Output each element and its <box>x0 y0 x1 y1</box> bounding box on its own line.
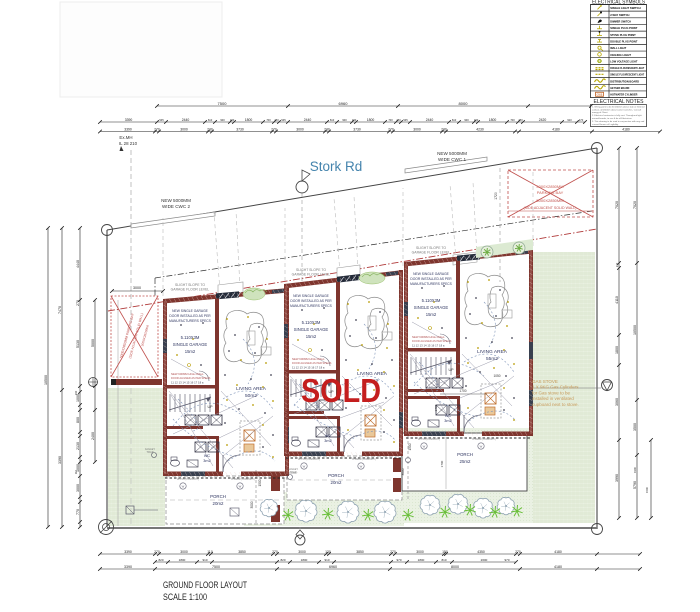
svg-text:3000: 3000 <box>250 501 254 508</box>
svg-text:610: 610 <box>452 118 457 122</box>
svg-text:MANUFACTURERS SPECS: MANUFACTURERS SPECS <box>169 319 212 323</box>
svg-text:installed in ventilated: installed in ventilated <box>532 396 574 401</box>
svg-text:W-TD5 (COMPANY): W-TD5 (COMPANY) <box>418 438 440 441</box>
svg-text:DOUBLE FLOURESCENT LIGHT: DOUBLE FLOURESCENT LIGHT <box>610 66 644 70</box>
svg-text:2420: 2420 <box>539 118 547 122</box>
svg-text:3m2: 3m2 <box>203 459 210 463</box>
svg-text:3850: 3850 <box>238 550 246 554</box>
svg-text:230: 230 <box>352 118 357 122</box>
svg-text:11 12 13 14 15 16 17 18 a: 11 12 13 14 15 16 17 18 a <box>412 344 445 348</box>
svg-text:NEW SINGLE GARAGE: NEW SINGLE GARAGE <box>413 272 450 276</box>
svg-text:970: 970 <box>504 558 509 562</box>
svg-text:270: 270 <box>388 127 394 131</box>
svg-text:4180: 4180 <box>554 550 562 554</box>
svg-text:970: 970 <box>396 558 401 562</box>
svg-text:W: W <box>480 444 483 448</box>
svg-text:NEW SINGLE GARAGE: NEW SINGLE GARAGE <box>172 309 209 313</box>
svg-text:CEILING LIGHT: CEILING LIGHT <box>610 53 631 57</box>
svg-text:545: 545 <box>403 118 408 122</box>
svg-text:3m2: 3m2 <box>444 419 451 423</box>
svg-text:3m2: 3m2 <box>324 439 331 443</box>
svg-text:SINGLE GARAGE: SINGLE GARAGE <box>294 327 329 332</box>
svg-text:7020: 7020 <box>615 201 619 209</box>
svg-text:3390: 3390 <box>124 565 132 569</box>
svg-text:2440: 2440 <box>304 118 312 122</box>
svg-text:D-SMAD (COMPANY): D-SMAD (COMPANY) <box>231 478 255 481</box>
svg-text:PORCH: PORCH <box>328 473 344 478</box>
svg-text:5000: 5000 <box>91 339 95 347</box>
svg-text:DOUBLE PLUG POINT: DOUBLE PLUG POINT <box>610 39 637 43</box>
svg-text:5.110X3M: 5.110X3M <box>422 298 441 303</box>
svg-text:3. This drawing to be read in: 3. This drawing to be read in conjunctio… <box>592 120 645 123</box>
svg-text:15m2: 15m2 <box>426 312 437 317</box>
svg-text:545: 545 <box>159 118 164 122</box>
svg-text:900: 900 <box>342 118 347 122</box>
svg-text:NEW 600MM HIGH WALL: NEW 600MM HIGH WALL <box>292 357 325 361</box>
svg-text:700: 700 <box>388 118 393 122</box>
svg-text:4110: 4110 <box>615 296 619 304</box>
svg-text:450: 450 <box>396 118 401 122</box>
svg-text:1720: 1720 <box>494 192 498 200</box>
svg-text:SINGLE GARAGE: SINGLE GARAGE <box>414 305 449 310</box>
svg-text:270: 270 <box>390 550 396 554</box>
svg-text:for Gas stove to be: for Gas stove to be <box>532 390 571 395</box>
svg-text:GROUND FLOOR LAYOUT: GROUND FLOOR LAYOUT <box>163 580 247 591</box>
svg-text:5.110X3M: 5.110X3M <box>302 320 321 325</box>
svg-text:4180: 4180 <box>622 127 630 131</box>
svg-text:Stork Rd: Stork Rd <box>310 159 363 174</box>
svg-text:D-SMAD (COMPANY): D-SMAD (COMPANY) <box>472 438 496 441</box>
svg-text:3000: 3000 <box>413 127 421 131</box>
svg-text:700: 700 <box>266 118 271 122</box>
svg-text:2440: 2440 <box>426 118 434 122</box>
svg-text:GARAGE FLOOR LEVEL: GARAGE FLOOR LEVEL <box>292 273 331 277</box>
svg-text:IL 28 210: IL 28 210 <box>119 141 138 146</box>
svg-text:TRAP: TRAP <box>147 450 154 454</box>
svg-text:450: 450 <box>274 118 279 122</box>
svg-text:610: 610 <box>208 118 213 122</box>
svg-text:GARAGE FLOOR LEVEL: GARAGE FLOOR LEVEL <box>412 251 451 255</box>
svg-text:770: 770 <box>76 509 80 515</box>
svg-text:GEYSER BOARD: GEYSER BOARD <box>610 86 630 90</box>
svg-text:3500: 3500 <box>633 423 637 431</box>
svg-text:270: 270 <box>76 300 80 306</box>
svg-text:4180: 4180 <box>552 127 560 131</box>
svg-text:(SIDE ADJACENT SOLID WALL): (SIDE ADJACENT SOLID WALL) <box>524 206 577 210</box>
svg-text:3000: 3000 <box>416 550 424 554</box>
svg-text:3000: 3000 <box>298 550 306 554</box>
svg-text:110: 110 <box>207 550 213 554</box>
svg-text:3000: 3000 <box>180 127 188 131</box>
svg-text:GAS STOVE: GAS STOVE <box>532 379 558 384</box>
svg-text:2400: 2400 <box>91 432 95 440</box>
svg-text:3850: 3850 <box>356 550 364 554</box>
svg-text:4180: 4180 <box>554 565 562 569</box>
svg-text:15m2: 15m2 <box>306 334 317 339</box>
svg-text:2-WAY SWITCH: 2-WAY SWITCH <box>610 13 629 17</box>
svg-text:2. Electrical contractor is fu: 2. Electrical contractor is fully cert. … <box>592 114 642 117</box>
svg-text:20m2: 20m2 <box>213 501 225 506</box>
svg-text:25m2: 25m2 <box>460 459 472 464</box>
svg-text:1800: 1800 <box>615 346 619 354</box>
svg-text:current Bureau of Legibility.: current Bureau of Legibility. <box>592 123 619 126</box>
svg-text:3390: 3390 <box>58 456 62 464</box>
svg-text:2130: 2130 <box>76 442 80 450</box>
svg-text:130: 130 <box>325 550 331 554</box>
svg-text:1 X 9KG Gas Cylinders: 1 X 9KG Gas Cylinders <box>532 385 579 390</box>
svg-text:NEW SINGLE GARAGE: NEW SINGLE GARAGE <box>293 294 330 298</box>
svg-text:TRAP: TRAP <box>290 470 297 474</box>
svg-text:1800: 1800 <box>179 558 186 562</box>
svg-text:470: 470 <box>579 118 584 122</box>
svg-text:4440: 4440 <box>76 260 80 268</box>
svg-text:6960: 6960 <box>339 101 349 106</box>
svg-text:energy of Client.: energy of Client. <box>592 111 608 114</box>
svg-text:W-TD5 (COMPANY): W-TD5 (COMPANY) <box>177 478 199 481</box>
svg-text:230: 230 <box>441 127 447 131</box>
svg-text:STOVE PLUG POINT: STOVE PLUG POINT <box>610 33 636 37</box>
svg-text:270: 270 <box>271 127 277 131</box>
svg-text:MANUFACTURERS SPECS: MANUFACTURERS SPECS <box>410 282 453 286</box>
svg-text:5790: 5790 <box>633 481 637 489</box>
svg-text:15m2: 15m2 <box>185 349 196 354</box>
svg-text:SCALE 1:100: SCALE 1:100 <box>163 592 207 603</box>
svg-text:1800: 1800 <box>245 118 253 122</box>
svg-text:W: W <box>360 464 363 468</box>
svg-text:SOLD: SOLD <box>301 372 381 409</box>
svg-text:230: 230 <box>230 118 235 122</box>
svg-text:DOOR ALIGNED AS PER SPECS: DOOR ALIGNED AS PER SPECS <box>171 376 211 380</box>
svg-text:270: 270 <box>515 550 521 554</box>
svg-text:W: W <box>423 444 426 448</box>
svg-text:3390: 3390 <box>125 118 133 122</box>
svg-text:1050: 1050 <box>493 374 500 378</box>
svg-text:450: 450 <box>518 118 523 122</box>
svg-text:WC: WC <box>325 434 332 438</box>
svg-text:10500: 10500 <box>44 375 48 385</box>
svg-text:11 12 13 14 15 16 17 18 a: 11 12 13 14 15 16 17 18 a <box>171 381 204 385</box>
svg-text:PORCH: PORCH <box>210 494 226 499</box>
svg-text:W-TD5 (COMPANY): W-TD5 (COMPANY) <box>298 458 320 461</box>
svg-text:270: 270 <box>272 550 278 554</box>
svg-text:SLIGHT SLOPE TO: SLIGHT SLOPE TO <box>416 246 446 250</box>
svg-text:820: 820 <box>280 558 285 562</box>
svg-text:5000X2850MM: 5000X2850MM <box>536 198 563 203</box>
svg-text:PARKING BAY: PARKING BAY <box>537 190 564 195</box>
svg-text:900: 900 <box>220 118 225 122</box>
svg-text:surface, all 450mm about socke: surface, all 450mm about socket switches… <box>592 108 642 111</box>
svg-text:PORCH: PORCH <box>457 452 473 457</box>
svg-text:3990: 3990 <box>615 474 619 482</box>
svg-text:1900: 1900 <box>633 467 637 473</box>
svg-text:270: 270 <box>154 127 160 131</box>
svg-text:4230: 4230 <box>476 127 484 131</box>
svg-text:1500: 1500 <box>258 479 262 486</box>
svg-text:10500: 10500 <box>633 325 637 335</box>
svg-text:DIMMER SWITCH: DIMMER SWITCH <box>610 20 631 24</box>
svg-text:3730: 3730 <box>236 127 244 131</box>
svg-text:3000: 3000 <box>133 286 141 290</box>
svg-text:W: W <box>239 484 242 488</box>
svg-text:NEW 5000MM: NEW 5000MM <box>161 198 191 203</box>
svg-text:cupboard next to stove.: cupboard next to stove. <box>532 402 579 407</box>
svg-text:7020: 7020 <box>633 201 637 209</box>
svg-text:DOOR INSTALLED AS PER: DOOR INSTALLED AS PER <box>169 314 211 318</box>
svg-text:910: 910 <box>567 118 572 122</box>
svg-text:SINGLE FLOURESCENT LIGHT: SINGLE FLOURESCENT LIGHT <box>610 73 644 77</box>
svg-text:545: 545 <box>281 118 286 122</box>
svg-text:D-SMAD (COMPANY): D-SMAD (COMPANY) <box>352 458 376 461</box>
svg-text:2600: 2600 <box>481 558 488 562</box>
svg-text:5.110X3M: 5.110X3M <box>181 335 200 340</box>
svg-text:3000: 3000 <box>401 468 405 475</box>
svg-text:3730: 3730 <box>353 127 361 131</box>
svg-text:55m2: 55m2 <box>486 356 498 362</box>
svg-text:WALL LIGHT: WALL LIGHT <box>610 46 626 50</box>
svg-text:HOTWATER CYLINDER: HOTWATER CYLINDER <box>610 93 638 97</box>
svg-text:SLIGHT SLOPE TO: SLIGHT SLOPE TO <box>296 268 326 272</box>
svg-text:3000: 3000 <box>76 484 80 492</box>
svg-text:3000: 3000 <box>180 550 188 554</box>
svg-text:DOOR INSTALLED AS PER: DOOR INSTALLED AS PER <box>290 299 332 303</box>
svg-text:SINGLE LIGHT SWITCH: SINGLE LIGHT SWITCH <box>610 6 640 10</box>
svg-text:1800: 1800 <box>418 558 425 562</box>
svg-text:910: 910 <box>324 558 329 562</box>
svg-text:Ex.MH: Ex.MH <box>119 135 132 140</box>
svg-text:1800: 1800 <box>301 558 308 562</box>
svg-text:GWB: GWB <box>597 94 603 97</box>
svg-text:1. Wiring point to be 50 450mm: 1. Wiring point to be 50 450mm above sla… <box>592 105 645 108</box>
svg-text:11 12 13 14 15 16 17 18 a: 11 12 13 14 15 16 17 18 a <box>292 366 325 370</box>
svg-text:7500: 7500 <box>212 565 220 569</box>
svg-text:150: 150 <box>442 550 448 554</box>
svg-text:1800: 1800 <box>489 118 497 122</box>
svg-text:4350: 4350 <box>477 550 485 554</box>
svg-text:910: 910 <box>202 558 207 562</box>
svg-text:5000X2850MM: 5000X2850MM <box>536 184 563 189</box>
svg-text:DOOR ALIGNED AS PER SPECS: DOOR ALIGNED AS PER SPECS <box>412 339 452 343</box>
svg-text:3390: 3390 <box>124 550 132 554</box>
svg-text:LIVING AREA: LIVING AREA <box>236 386 267 392</box>
svg-text:DOOR ALIGNED AS PER SPECS: DOOR ALIGNED AS PER SPECS <box>292 361 332 365</box>
svg-text:230: 230 <box>324 127 330 131</box>
svg-text:SLIGHT SLOPE TO: SLIGHT SLOPE TO <box>175 283 205 287</box>
svg-text:WIDE CWC 2: WIDE CWC 2 <box>162 204 191 209</box>
svg-text:7500: 7500 <box>218 101 228 106</box>
svg-text:700: 700 <box>510 118 515 122</box>
svg-text:SINGLE GARAGE: SINGLE GARAGE <box>173 342 208 347</box>
svg-text:WIDE CWC 1: WIDE CWC 1 <box>438 157 467 162</box>
svg-text:230: 230 <box>74 390 78 395</box>
svg-text:NEW 5000MM: NEW 5000MM <box>437 151 467 156</box>
svg-text:8000: 8000 <box>459 101 469 106</box>
svg-text:3000: 3000 <box>296 127 304 131</box>
svg-text:610: 610 <box>330 118 335 122</box>
svg-text:ELECTRICAL NOTES: ELECTRICAL NOTES <box>594 99 645 105</box>
svg-text:NEW 600MM HIGH WALL: NEW 600MM HIGH WALL <box>412 335 445 339</box>
svg-text:820: 820 <box>158 558 163 562</box>
svg-text:1700: 1700 <box>459 389 466 393</box>
svg-text:6960: 6960 <box>329 565 337 569</box>
svg-text:NEW 600MM HIGH WALL: NEW 600MM HIGH WALL <box>171 372 204 376</box>
svg-text:230: 230 <box>207 127 213 131</box>
svg-text:3060: 3060 <box>615 398 619 406</box>
svg-text:W: W <box>303 464 306 468</box>
svg-text:1500: 1500 <box>645 487 649 493</box>
svg-text:SINGLE PLUG POINT: SINGLE PLUG POINT <box>610 26 637 30</box>
svg-text:WC: WC <box>204 454 211 458</box>
svg-text:UP: UP <box>208 405 214 409</box>
svg-text:around boards, to use & be of: around boards, to use & be of Electricia… <box>592 117 633 120</box>
svg-text:LOW VOLTAGE LIGHT: LOW VOLTAGE LIGHT <box>610 59 637 63</box>
svg-text:5130: 5130 <box>76 340 80 348</box>
svg-text:GARAGE FLOOR LEVEL: GARAGE FLOOR LEVEL <box>171 288 210 292</box>
svg-text:1500: 1500 <box>408 443 412 450</box>
svg-text:UP: UP <box>449 368 455 372</box>
svg-text:270: 270 <box>154 550 160 554</box>
svg-text:810: 810 <box>441 558 446 562</box>
svg-text:230: 230 <box>474 118 479 122</box>
svg-text:DOOR INSTALLED AS PER: DOOR INSTALLED AS PER <box>410 277 452 281</box>
svg-text:3390: 3390 <box>124 127 132 131</box>
svg-text:20m2: 20m2 <box>331 480 343 485</box>
svg-text:W: W <box>182 484 185 488</box>
svg-text:DISTRIBUTION BOARD: DISTRIBUTION BOARD <box>610 79 640 83</box>
svg-text:2440: 2440 <box>182 118 190 122</box>
svg-text:8000: 8000 <box>451 565 459 569</box>
svg-text:MANUFACTURERS SPECS: MANUFACTURERS SPECS <box>290 304 333 308</box>
svg-text:1700: 1700 <box>440 460 444 467</box>
svg-text:WC: WC <box>445 414 452 418</box>
svg-text:270: 270 <box>615 262 619 267</box>
svg-text:110: 110 <box>74 469 78 474</box>
svg-text:LIVING AREA: LIVING AREA <box>477 349 508 355</box>
svg-text:900: 900 <box>464 118 469 122</box>
svg-text:7470: 7470 <box>58 306 62 314</box>
svg-text:1800: 1800 <box>367 118 375 122</box>
svg-text:50m2: 50m2 <box>245 393 257 399</box>
svg-text:800: 800 <box>76 417 80 423</box>
